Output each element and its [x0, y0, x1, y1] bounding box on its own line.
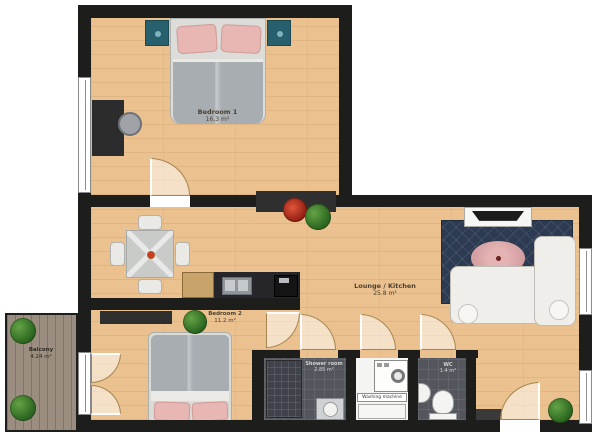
shower-room-area: 2.85 m² — [302, 367, 346, 373]
wall — [466, 358, 476, 420]
wc-label: WC 1.4 m² — [432, 362, 464, 375]
window-glass-line — [586, 251, 587, 312]
wall — [78, 5, 352, 18]
stove-panel — [279, 278, 289, 283]
bedroom1-name: Bedroom 1 — [160, 108, 275, 116]
green-plant-icon — [305, 204, 331, 230]
bedroom2-area: 11.2 m² — [196, 318, 254, 325]
window-glass-line — [586, 373, 587, 421]
pillow — [176, 24, 218, 55]
balcony-deck: Balcony 4.24 m² — [5, 313, 78, 432]
wall — [408, 358, 418, 420]
kitchen-counter — [214, 272, 300, 298]
lounge-window — [579, 248, 592, 315]
kitchen-sink — [222, 277, 252, 295]
wall — [78, 193, 91, 352]
dining-chair — [110, 242, 125, 266]
pillow — [192, 401, 229, 422]
wall — [338, 350, 360, 358]
dining-chair — [138, 215, 162, 230]
pillow — [220, 24, 261, 54]
toilet-tank — [429, 413, 457, 420]
bedroom2-label: Bedroom 2 11.2 m² — [196, 311, 254, 325]
bathroom-sink — [316, 398, 344, 420]
laundry-counter — [358, 404, 406, 419]
balcony-area: 4.24 m² — [13, 354, 69, 361]
wall — [78, 420, 500, 432]
kitchen-cabinet — [182, 272, 214, 298]
dining-chair — [138, 279, 162, 294]
balcony-door-window — [78, 352, 91, 415]
desk-chair — [118, 112, 142, 136]
shower-room-label: Shower room 2.85 m² — [302, 361, 346, 374]
wall — [339, 5, 352, 207]
bedroom1-area: 16.3 m² — [160, 116, 275, 124]
lounge-window — [579, 370, 592, 424]
bedroom2-shelf — [100, 311, 172, 324]
laundry-floor: Washing machine — [356, 358, 408, 420]
tv-console — [464, 207, 532, 227]
dining-table — [126, 230, 174, 278]
blanket — [151, 335, 229, 391]
wall — [456, 350, 478, 358]
nightstand-knob-icon — [155, 31, 161, 37]
stove — [274, 275, 298, 297]
wall — [398, 350, 420, 358]
balcony-plant-icon — [10, 318, 36, 344]
washer-door-icon — [391, 369, 405, 383]
wc-area: 1.4 m² — [432, 368, 464, 374]
lounge-name: Lounge / Kitchen — [330, 282, 440, 290]
bedroom2-name: Bedroom 2 — [196, 311, 254, 318]
washer-knob-icon — [377, 363, 382, 367]
table-flower-icon — [147, 251, 155, 259]
window-glass-line — [85, 355, 86, 412]
balcony-plant-icon — [10, 395, 36, 421]
washer-knob-icon — [384, 363, 389, 367]
bedroom1-window — [78, 77, 91, 193]
entry-plant-icon — [548, 398, 573, 423]
lounge-label: Lounge / Kitchen 25.8 m² — [330, 282, 440, 298]
wall — [78, 5, 91, 77]
tv-icon — [472, 211, 524, 222]
nightstand-knob-icon — [277, 31, 283, 37]
window-glass-line — [85, 80, 86, 190]
sink-basin — [225, 280, 235, 291]
pillow — [154, 401, 191, 421]
lounge-area: 25.8 m² — [330, 290, 440, 298]
shower-tray — [266, 360, 302, 418]
wall — [264, 350, 300, 358]
nightstand — [145, 20, 169, 46]
sink-basin — [238, 280, 248, 291]
nightstand — [267, 20, 291, 46]
wall — [339, 195, 592, 207]
toilet-bowl-icon — [432, 390, 454, 414]
sofa-cushion — [549, 300, 569, 320]
red-flower-plant-icon — [283, 198, 307, 222]
wall — [346, 358, 356, 420]
wc-sink — [418, 383, 431, 403]
sofa-cushion — [458, 304, 478, 324]
washing-machine-label: Washing machine — [357, 393, 407, 402]
bedroom2-bed — [148, 332, 232, 422]
balcony-name: Balcony — [13, 347, 69, 354]
washing-machine-icon — [374, 360, 408, 392]
balcony-label: Balcony 4.24 m² — [13, 347, 69, 361]
floor-plan-canvas: Balcony 4.24 m² Bedroom 1 16.3 m² — [0, 0, 600, 448]
bedroom1-label: Bedroom 1 16.3 m² — [160, 108, 275, 124]
sink-bowl-icon — [323, 402, 338, 417]
wall — [579, 207, 592, 248]
wall — [78, 298, 300, 310]
wall — [78, 195, 150, 207]
dining-chair — [175, 242, 190, 266]
wall — [579, 315, 592, 370]
wall — [252, 350, 264, 420]
rug-center-dot-icon — [496, 256, 501, 261]
sheet-fold — [151, 391, 229, 401]
